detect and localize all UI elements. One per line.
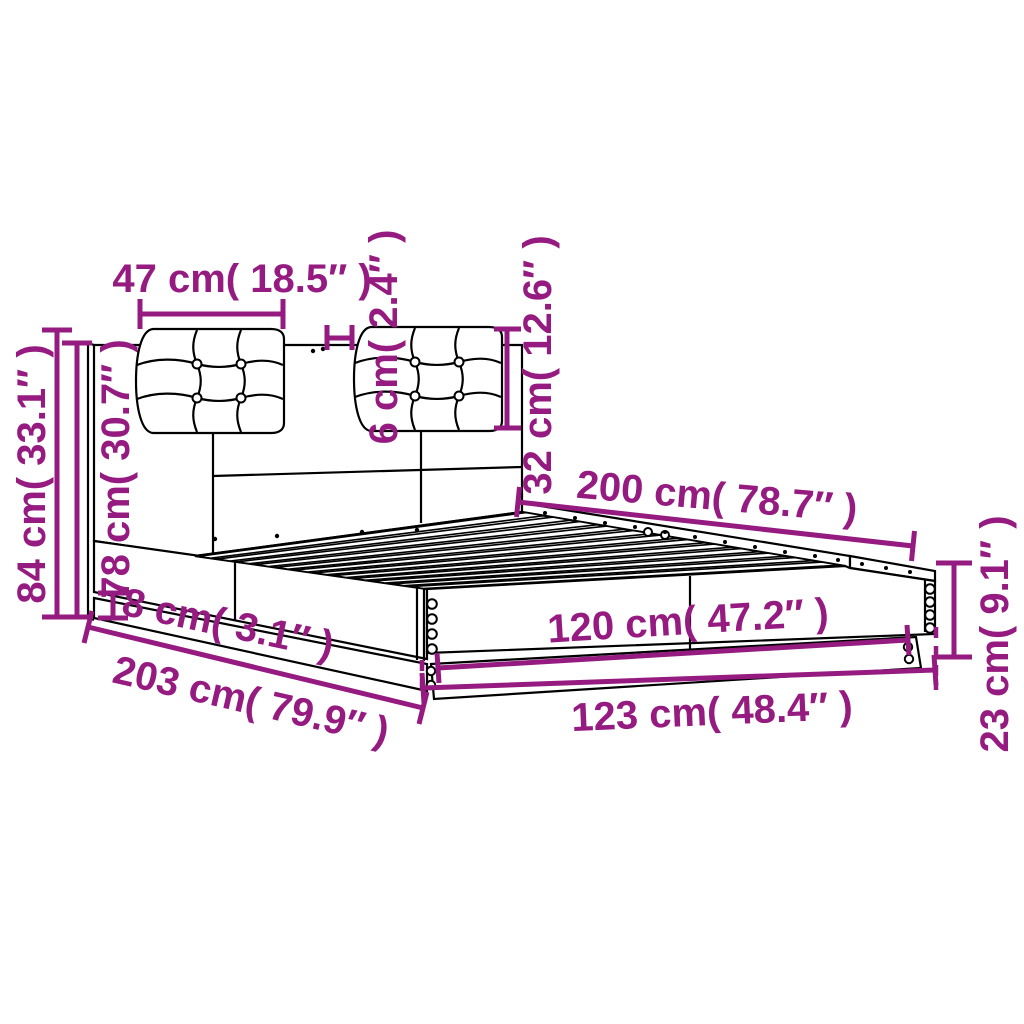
dim-label-outer-width: 123 cm( 48.4″ )	[570, 684, 853, 740]
dim-label-frame-height: 23 cm( 9.1″ )	[973, 515, 1017, 752]
dim-headboard-height: 78 cm( 30.7″ )	[62, 339, 138, 617]
dim-label-cushion-height: 32 cm( 12.6″ )	[516, 235, 560, 494]
dim-label-headboard-height: 78 cm( 30.7″ )	[94, 339, 138, 598]
dim-total-height: 84 cm( 33.1″ )	[10, 330, 92, 617]
bed-frame-dimension-diagram: 47 cm( 18.5″ ) 84 cm( 33.1″ ) 78 cm( 30.…	[0, 0, 1024, 1024]
dim-frame-height: 23 cm( 9.1″ )	[936, 515, 1017, 752]
dim-label-total-height: 84 cm( 33.1″ )	[10, 344, 54, 603]
dim-label-cushion-width: 47 cm( 18.5″ )	[112, 257, 371, 301]
diagram-canvas: 47 cm( 18.5″ ) 84 cm( 33.1″ ) 78 cm( 30.…	[0, 0, 1024, 1024]
cushion-1	[136, 329, 284, 433]
dim-cushion-width: 47 cm( 18.5″ )	[112, 257, 371, 329]
dim-label-cushion-thickness: 6 cm( 2.4″ )	[362, 230, 406, 445]
